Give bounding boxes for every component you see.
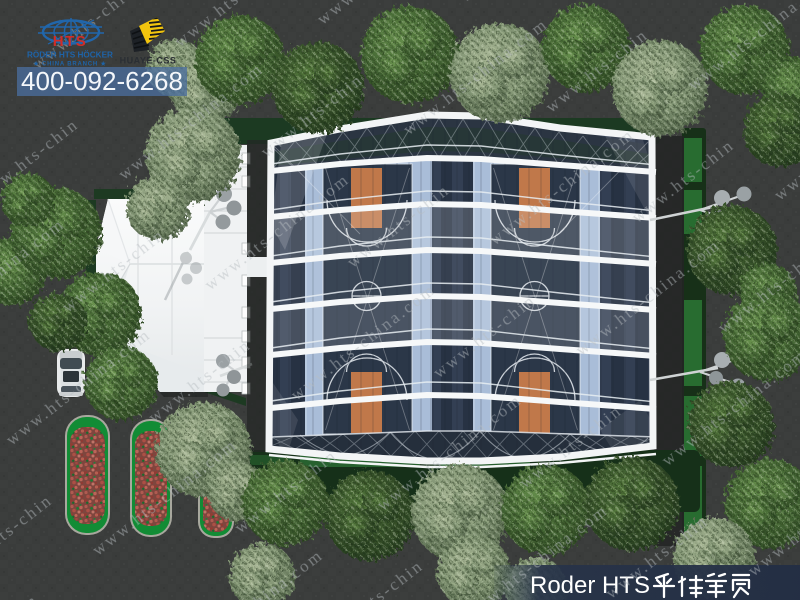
svg-text:RÖDER HTS HÖCKER: RÖDER HTS HÖCKER xyxy=(27,50,113,60)
svg-text:HUAYE-CSS: HUAYE-CSS xyxy=(120,56,177,66)
svg-text:400-092-6268: 400-092-6268 xyxy=(21,66,183,96)
svg-text:HTS: HTS xyxy=(53,33,88,50)
